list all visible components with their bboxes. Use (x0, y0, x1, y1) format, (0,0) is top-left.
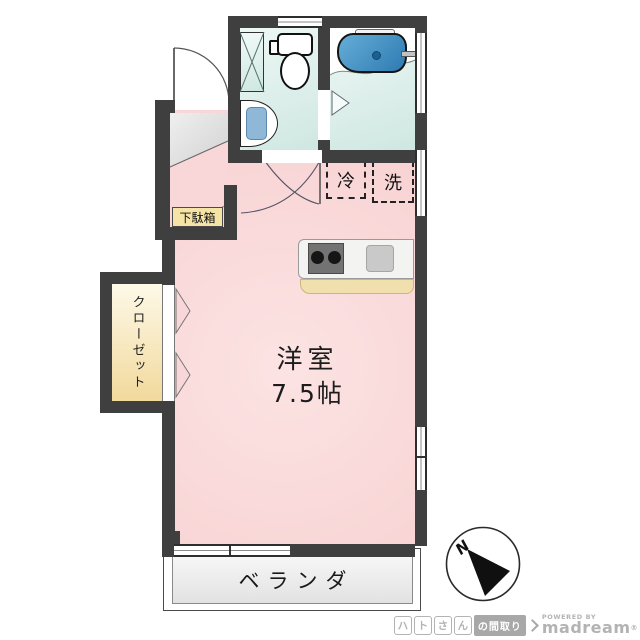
window-lower-right (415, 427, 427, 490)
watermark-brand-block: POWERED BY madream® (542, 614, 638, 637)
window-veranda-slider (174, 544, 290, 557)
window-top (278, 16, 322, 28)
wall-bottom-right (290, 544, 415, 557)
toilet-doorway (262, 150, 322, 163)
bathtub-drain (372, 51, 381, 60)
toilet-bowl (280, 52, 310, 90)
window-sash-tick (417, 456, 425, 458)
washbasin-bowl (246, 107, 267, 140)
watermark-char-box: ん (454, 616, 472, 635)
wall-sanitary-bottom-right (322, 150, 415, 163)
window-bathroom-right (415, 33, 427, 113)
closet-label: クローゼット (112, 284, 162, 401)
washer-space: 洗 (372, 161, 414, 203)
wall-closet-left (100, 272, 112, 413)
watermark-brand: madream® (542, 620, 638, 636)
watermark-char-box: ハ (394, 616, 412, 635)
wall-closet-bottom (100, 401, 175, 413)
wall-sanitary-bottom-left (240, 150, 262, 163)
watermark: ハ ト さ ん の間取り POWERED BY madream® (394, 612, 638, 638)
wall-left-below-closet (162, 413, 175, 546)
shoe-cabinet-label: 下駄箱 (179, 209, 215, 226)
wall-shoe-cabinet-right (224, 185, 237, 240)
watermark-brand-text: madream (542, 618, 631, 637)
wall-sanitary-left (228, 16, 240, 163)
shower-unit (240, 32, 264, 92)
shoe-cabinet: 下駄箱 (172, 207, 223, 227)
slider-divider-tick (229, 546, 231, 555)
compass-circle (447, 528, 520, 601)
watermark-reg-mark: ® (631, 624, 639, 632)
veranda: ベランダ (172, 556, 413, 604)
wall-closet-top (100, 272, 175, 284)
kitchen-sink (366, 245, 394, 272)
stove-burner-right (328, 251, 341, 264)
window-washer-right (415, 150, 427, 216)
watermark-char-box: ト (414, 616, 432, 635)
kitchen-base-cabinet (300, 279, 414, 294)
washer-label: 洗 (384, 169, 402, 195)
veranda-label: ベランダ (231, 565, 355, 595)
main-room-name: 洋室 (225, 344, 390, 378)
entrance-door-swing (174, 48, 229, 103)
wall-left-upper (155, 100, 170, 240)
closet-label-text: クローゼット (128, 295, 147, 391)
compass-north-arrow (467, 549, 510, 596)
watermark-chevron-icon (526, 619, 539, 632)
main-room-size: 7.5帖 (225, 378, 390, 411)
stove-burner-left (311, 251, 324, 264)
main-room-label: 洋室 7.5帖 (225, 344, 390, 410)
floorplan-canvas: ベランダ 下駄箱 冷 洗 (0, 0, 640, 640)
refrigerator-label: 冷 (337, 167, 355, 193)
watermark-char-box: さ (434, 616, 452, 635)
refrigerator-space: 冷 (326, 161, 366, 199)
closet-folding-door (162, 284, 175, 401)
watermark-madori-label: の間取り (474, 615, 526, 636)
compass-n-label: N (452, 536, 474, 558)
compass: N (447, 528, 520, 601)
